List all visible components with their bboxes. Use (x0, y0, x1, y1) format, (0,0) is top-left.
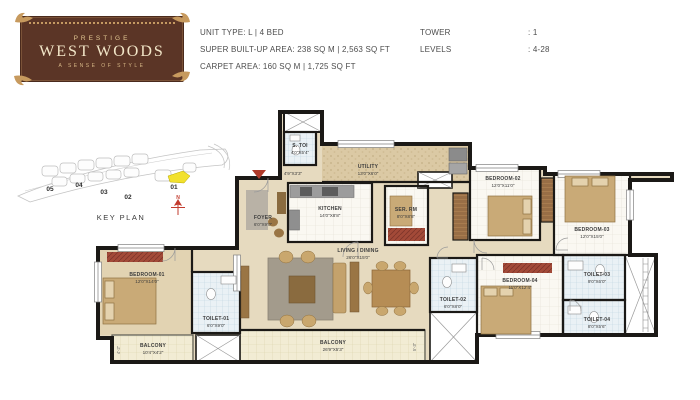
room-label-utility: UTILITY (358, 164, 379, 170)
balcony-small-side-dim: 4'-2" (116, 345, 121, 354)
balcony-large-side-dim: 5'-3" (412, 342, 417, 351)
room-dims-kitchen: 14'0"X8'8" (320, 213, 341, 218)
wardrobe (453, 193, 468, 240)
room-label-foyer: FOYER (254, 215, 272, 221)
room-dims-balcony-small: 10'4"X4'2" (143, 350, 164, 355)
room-label-toilet-03: TOILET-03 (584, 272, 610, 278)
room-label-balcony-small: BALCONY (140, 343, 167, 349)
bedroom-01-wardrobe (107, 252, 163, 262)
key-plan-tower-04: 04 (75, 182, 83, 189)
room-dims-living-dining: 26'0"X15'0" (346, 255, 370, 260)
floor-plan: S. TOI 4'0"X5'4" 4'9"X3'3" UTILITY 13'0"… (95, 112, 673, 362)
room-label-bedroom-01: BEDROOM-01 (129, 272, 164, 278)
floor-plan-sheet: PRESTIGE WEST WOODS A SENSE OF STYLE UNI… (0, 0, 700, 400)
wardrobe (541, 178, 554, 222)
room-label-balcony-large: BALCONY (320, 340, 347, 346)
room-label-bedroom-02: BEDROOM-02 (485, 176, 520, 182)
room-dims-foyer: 6'0"X9'0" (254, 222, 273, 227)
plan-canvas: 05 04 03 02 01 KEY PLAN N (0, 0, 700, 400)
room-label-bedroom-04: BEDROOM-04 (502, 278, 537, 284)
room-dims-toilet-02: 6'0"X8'0" (444, 304, 463, 309)
room-label-toilet-01: TOILET-01 (203, 316, 229, 322)
key-plan-title: KEY PLAN (97, 213, 146, 222)
room-dims-bedroom-01: 12'0"X14'0" (135, 279, 159, 284)
room-label-living-dining: LIVING / DINING (337, 248, 378, 254)
room-label-bedroom-03: BEDROOM-03 (574, 227, 609, 233)
room-label-s-toi: S. TOI (292, 143, 308, 149)
room-dims-toilet-01: 6'0"X9'0" (207, 323, 226, 328)
room-label-toilet-02: TOILET-02 (440, 297, 466, 303)
bedroom-04-wardrobe (503, 263, 552, 273)
room-dims-bedroom-04: 11'0"X12'4" (508, 285, 531, 290)
room-dims-s-toi: 4'0"X5'4" (291, 150, 310, 155)
room-dims-balcony-large: 26'9"X5'3" (323, 347, 344, 352)
compass-icon: N (171, 195, 185, 215)
key-plan-tower-02: 02 (124, 194, 132, 201)
key-plan: 05 04 03 02 01 KEY PLAN N (18, 144, 230, 222)
room-dims-toilet-03: 9'0"X6'0" (588, 279, 607, 284)
room-dims-passage: 4'9"X3'3" (284, 171, 303, 176)
room-label-kitchen: KITCHEN (318, 206, 342, 212)
key-plan-tower-01: 01 (170, 184, 178, 191)
room-dims-bedroom-02: 12'0"X11'0" (491, 183, 514, 188)
room-dims-utility: 13'0"X6'0" (358, 171, 379, 176)
key-plan-tower-03: 03 (100, 189, 108, 196)
room-label-toilet-04: TOILET-04 (584, 317, 610, 323)
balcony-large-floor (240, 330, 425, 362)
room-dims-toilet-04: 8'0"X5'6" (588, 324, 607, 329)
room-dims-bedroom-03: 12'0"X15'0" (580, 234, 604, 239)
key-plan-tower-05: 05 (46, 186, 54, 193)
room-dims-ser-rm: 8'0"X8'8" (397, 214, 416, 219)
room-label-ser-rm: SER. RM (395, 207, 417, 213)
